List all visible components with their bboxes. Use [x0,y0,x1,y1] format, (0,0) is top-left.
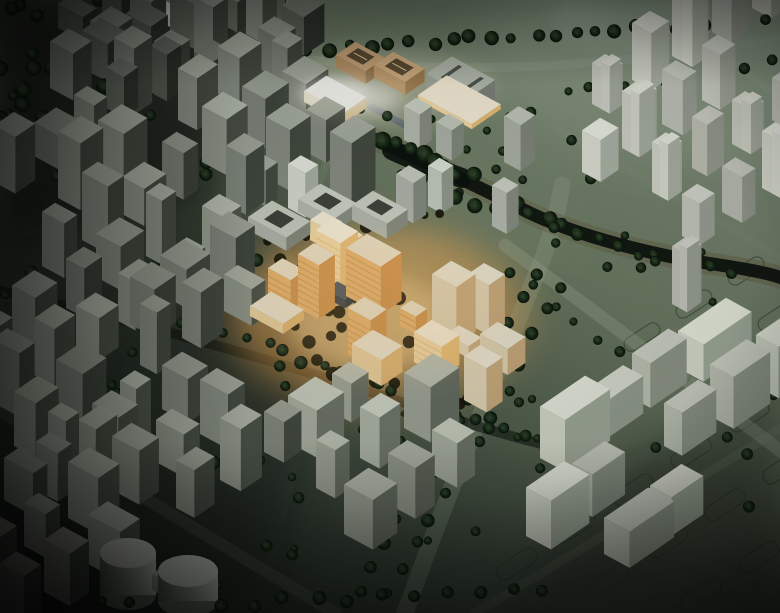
vignette-top [0,0,780,613]
city-model-photo [0,0,780,613]
vignette [0,0,780,613]
photo-frame [0,0,780,613]
